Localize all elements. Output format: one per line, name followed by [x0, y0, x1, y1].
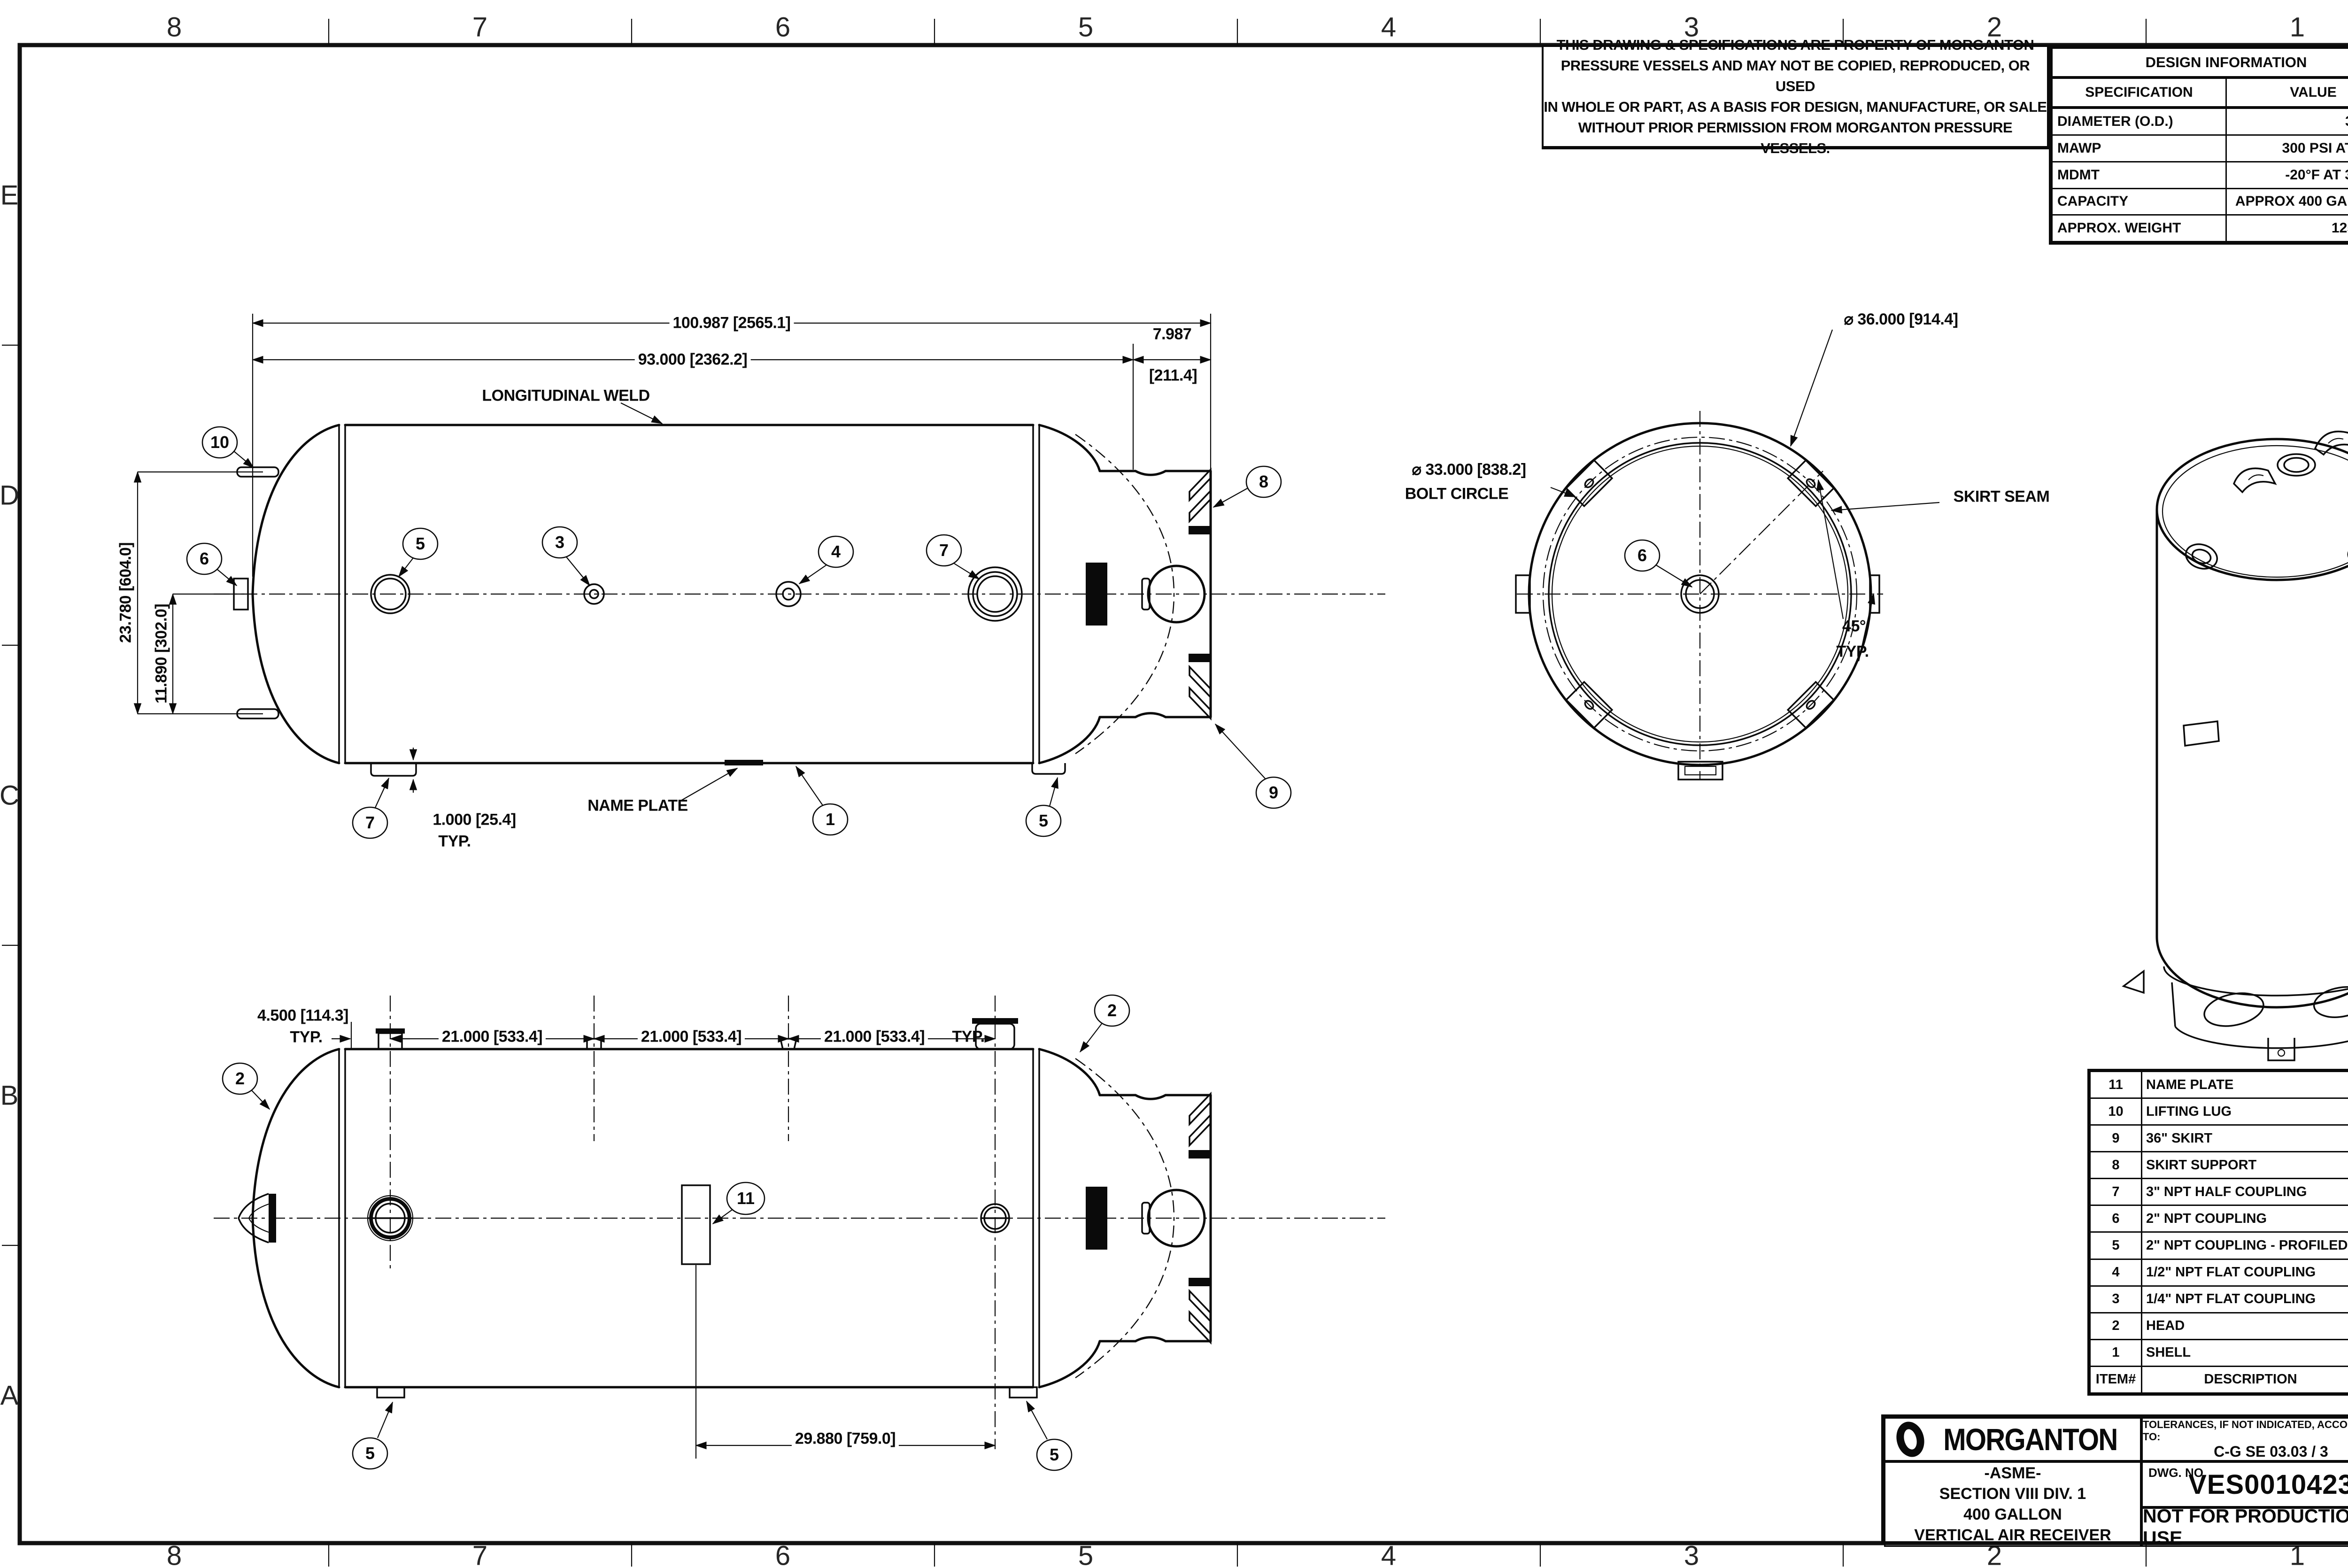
- balloon-3npt-half-coupling: 7: [365, 813, 375, 833]
- dim-angle-typ: TYP.: [1836, 643, 1869, 661]
- dwg-no-label: DWG. NO.: [2148, 1466, 2207, 1480]
- table-row: 11NAME PLATE1: [2090, 1072, 2348, 1098]
- item-description: LIFTING LUG: [2142, 1098, 2348, 1125]
- col-header-description: DESCRIPTION: [2142, 1366, 2348, 1393]
- drawing-canvas: [0, 0, 2348, 1568]
- item-description: 1/2" NPT FLAT COUPLING: [2142, 1259, 2348, 1286]
- zone-row-left: C: [0, 780, 19, 811]
- drawing-number-cell: DWG. NO. VES0010423: [2141, 1461, 2348, 1507]
- table-row: CAPACITY APPROX 400 GALLONS: [2052, 188, 2348, 215]
- balloon-coupling-profiled: 5: [365, 1444, 375, 1463]
- zone-col-top: 5: [1078, 12, 1093, 43]
- dim-coupling-pitch: 21.000 [533.4]: [439, 1028, 546, 1046]
- dim-overall-length: 100.987 [2565.1]: [670, 314, 794, 332]
- design-info-title: DESIGN INFORMATION: [2052, 48, 2348, 77]
- end-view: [1516, 330, 1939, 780]
- table-row: DIAMETER (O.D.) 36.000": [2052, 108, 2348, 135]
- copyright-line: THIS DRAWING & SPECIFICATIONS ARE PROPER…: [1557, 35, 2034, 55]
- table-row: 62" NPT COUPLING2: [2090, 1205, 2348, 1232]
- dim-coupling-pitch: 21.000 [533.4]: [821, 1028, 928, 1046]
- item-number: 4: [2090, 1259, 2142, 1286]
- note-skirt-seam: SKIRT SEAM: [1954, 488, 2050, 506]
- note-name-plate: NAME PLATE: [587, 797, 687, 815]
- zone-col-bottom: 7: [472, 1540, 487, 1568]
- balloon-half-npt: 4: [831, 542, 841, 562]
- tolerances-label: TOLERANCES, IF NOT INDICATED, ACCORDING …: [2143, 1419, 2348, 1443]
- product-line: VERTICAL AIR RECEIVER: [1914, 1525, 2111, 1545]
- item-description: 3" NPT HALF COUPLING: [2142, 1179, 2348, 1205]
- item-description: 2" NPT COUPLING: [2142, 1205, 2348, 1232]
- balloon-lifting-lug: 10: [210, 433, 229, 452]
- item-number: 9: [2090, 1125, 2142, 1152]
- dim-lug-half: 11.890 [302.0]: [153, 604, 171, 703]
- balloon-coupling-2npt: 6: [1637, 546, 1647, 565]
- balloon-3npt-half-coupling: 7: [939, 541, 949, 560]
- table-row: 31/4" NPT FLAT COUPLING1: [2090, 1286, 2348, 1313]
- drawing-sheet: 8 7 6 5 4 3 2 1 8 7 6 5 4 3 2 1 E D C B …: [0, 0, 2348, 1568]
- copyright-notice: THIS DRAWING & SPECIFICATIONS ARE PROPER…: [1542, 45, 2049, 149]
- dim-head-offset: 4.500 [114.3]: [257, 1007, 348, 1025]
- balloon-head: 2: [235, 1069, 245, 1089]
- status-cell: NOT FOR PRODUCTION USE: [2141, 1507, 2348, 1547]
- item-description: 2" NPT COUPLING - PROFILED: [2142, 1232, 2348, 1259]
- product-line: -ASME-: [1985, 1463, 2041, 1483]
- table-row: 41/2" NPT FLAT COUPLING1: [2090, 1259, 2348, 1286]
- table-row: MAWP 300 PSI AT 650°F: [2052, 135, 2348, 162]
- label-bolt-circle: BOLT CIRCLE: [1405, 485, 1509, 503]
- balloon-coupling-profiled: 5: [1050, 1445, 1059, 1465]
- product-line: 400 GALLON: [1963, 1504, 2062, 1525]
- table-row: 1SHELL1: [2090, 1339, 2348, 1366]
- zone-row-left: B: [0, 1080, 19, 1112]
- item-description: 36" SKIRT: [2142, 1125, 2348, 1152]
- balloon-coupling-2npt: 6: [200, 549, 209, 569]
- zone-col-top: 8: [167, 12, 182, 43]
- zone-col-top: 4: [1381, 12, 1396, 43]
- spec-name: CAPACITY: [2052, 188, 2226, 215]
- dim-skirt-length-in: 7.987: [1153, 325, 1192, 344]
- dim-lug-span: 23.780 [604.0]: [117, 542, 135, 643]
- design-info-col-header: VALUE: [2226, 77, 2348, 108]
- dim-head-offset-typ: TYP.: [290, 1028, 322, 1047]
- brand-name: MORGANTON: [1943, 1421, 2117, 1457]
- item-number: 2: [2090, 1313, 2142, 1339]
- balloon-coupling-profiled: 5: [416, 534, 425, 554]
- spec-name: DIAMETER (O.D.): [2052, 108, 2226, 135]
- spec-value: 1250 LBS: [2226, 215, 2348, 242]
- dim-angle-45: 45°: [1842, 618, 1866, 636]
- dim-typ: TYP.: [438, 833, 471, 851]
- balloon-skirt: 9: [1269, 783, 1278, 803]
- dim-coupling-pitch: 21.000 [533.4]: [638, 1028, 745, 1046]
- zone-col-bottom: 5: [1078, 1540, 1093, 1568]
- item-number: 1: [2090, 1339, 2142, 1366]
- sheet-border: [2, 19, 2348, 1567]
- balloon-shell: 1: [826, 810, 835, 829]
- spec-value: 300 PSI AT 650°F: [2226, 135, 2348, 162]
- design-information-table: DESIGN INFORMATION SPECIFICATION VALUE D…: [2049, 45, 2348, 245]
- zone-row-left: A: [0, 1380, 19, 1412]
- item-description: 1/4" NPT FLAT COUPLING: [2142, 1286, 2348, 1313]
- zone-col-bottom: 6: [775, 1540, 790, 1568]
- tolerances-value: C-G SE 03.03 / 3: [2214, 1443, 2328, 1460]
- dim-coupling-pitch-typ: TYP.: [952, 1028, 984, 1046]
- table-row: APPROX. WEIGHT 1250 LBS: [2052, 215, 2348, 242]
- zone-row-left: E: [0, 180, 19, 211]
- item-description: NAME PLATE: [2142, 1072, 2348, 1098]
- dim-outer-diameter: ⌀ 36.000 [914.4]: [1844, 310, 1958, 329]
- balloon-coupling-profiled: 5: [1039, 811, 1048, 831]
- balloon-head: 2: [1107, 1001, 1117, 1020]
- spec-name: MAWP: [2052, 135, 2226, 162]
- table-row: MDMT -20°F AT 300 PSI: [2052, 162, 2348, 188]
- dim-skirt-length-mm: [211.4]: [1149, 367, 1197, 385]
- dim-shell-length: 93.000 [2362.2]: [635, 351, 751, 369]
- col-header-item: ITEM#: [2090, 1366, 2142, 1393]
- copyright-line: IN WHOLE OR PART, AS A BASIS FOR DESIGN,…: [1544, 97, 2047, 117]
- note-longitudinal-weld: LONGITUDINAL WELD: [482, 387, 649, 405]
- balloon-quarter-npt: 3: [555, 533, 564, 552]
- isometric-view: [2124, 432, 2348, 1060]
- item-description: HEAD: [2142, 1313, 2348, 1339]
- balloon-name-plate: 11: [737, 1189, 755, 1208]
- table-row: 73" NPT HALF COUPLING2: [2090, 1179, 2348, 1205]
- spec-value: APPROX 400 GALLONS: [2226, 188, 2348, 215]
- item-number: 6: [2090, 1205, 2142, 1232]
- title-block: MORGANTON -ASME- SECTION VIII DIV. 1 400…: [1881, 1414, 2348, 1544]
- dim-foot-offset: 1.000 [25.4]: [433, 811, 516, 829]
- product-line: SECTION VIII DIV. 1: [1939, 1483, 2086, 1504]
- balloon-circles-view1: [187, 427, 1291, 838]
- design-info-col-header: SPECIFICATION: [2052, 77, 2226, 108]
- zone-col-bottom: 3: [1684, 1540, 1699, 1568]
- dwg-no-value: VES0010423: [2188, 1469, 2348, 1500]
- item-number: 11: [2090, 1072, 2142, 1098]
- copyright-line: WITHOUT PRIOR PERMISSION FROM MORGANTON …: [1544, 117, 2047, 159]
- status-text: NOT FOR PRODUCTION USE: [2143, 1507, 2348, 1547]
- spec-value: 36.000": [2226, 108, 2348, 135]
- zone-col-bottom: 8: [167, 1540, 182, 1568]
- zone-col-top: 6: [775, 12, 790, 43]
- logo-cell: MORGANTON: [1884, 1417, 2141, 1461]
- parts-list-table: 11NAME PLATE1 10LIFTING LUG2 936" SKIRT1…: [2087, 1069, 2348, 1396]
- item-number: 8: [2090, 1152, 2142, 1179]
- table-row: 52" NPT COUPLING - PROFILED4: [2090, 1232, 2348, 1259]
- zone-col-top: 1: [2290, 12, 2305, 43]
- item-number: 3: [2090, 1286, 2142, 1313]
- spec-value: -20°F AT 300 PSI: [2226, 162, 2348, 188]
- side-view-plan: [214, 995, 1385, 1470]
- item-number: 5: [2090, 1232, 2142, 1259]
- item-number: 10: [2090, 1098, 2142, 1125]
- item-number: 7: [2090, 1179, 2142, 1205]
- table-row: 8SKIRT SUPPORT4: [2090, 1152, 2348, 1179]
- zone-col-bottom: 4: [1381, 1540, 1396, 1568]
- table-row: 10LIFTING LUG2: [2090, 1098, 2348, 1125]
- parts-list-header-row: ITEM# DESCRIPTION QTY.: [2090, 1366, 2348, 1393]
- spec-name: MDMT: [2052, 162, 2226, 188]
- zone-row-left: D: [0, 480, 19, 511]
- zone-col-top: 7: [472, 12, 487, 43]
- morganton-logo-icon: [1892, 1419, 1928, 1460]
- dim-nameplate-offset: 29.880 [759.0]: [792, 1430, 899, 1448]
- product-title-cell: -ASME- SECTION VIII DIV. 1 400 GALLON VE…: [1884, 1461, 2141, 1547]
- table-row: 2HEAD2: [2090, 1313, 2348, 1339]
- item-description: SHELL: [2142, 1339, 2348, 1366]
- table-row: 936" SKIRT1: [2090, 1125, 2348, 1152]
- side-view-horizontal: [138, 314, 1385, 838]
- copyright-line: PRESSURE VESSELS AND MAY NOT BE COPIED, …: [1544, 55, 2047, 97]
- spec-name: APPROX. WEIGHT: [2052, 215, 2226, 242]
- balloon-skirt-support: 8: [1259, 472, 1268, 492]
- item-description: SKIRT SUPPORT: [2142, 1152, 2348, 1179]
- tolerances-cell: TOLERANCES, IF NOT INDICATED, ACCORDING …: [2141, 1417, 2348, 1461]
- dim-bolt-circle: ⌀ 33.000 [838.2]: [1412, 460, 1526, 479]
